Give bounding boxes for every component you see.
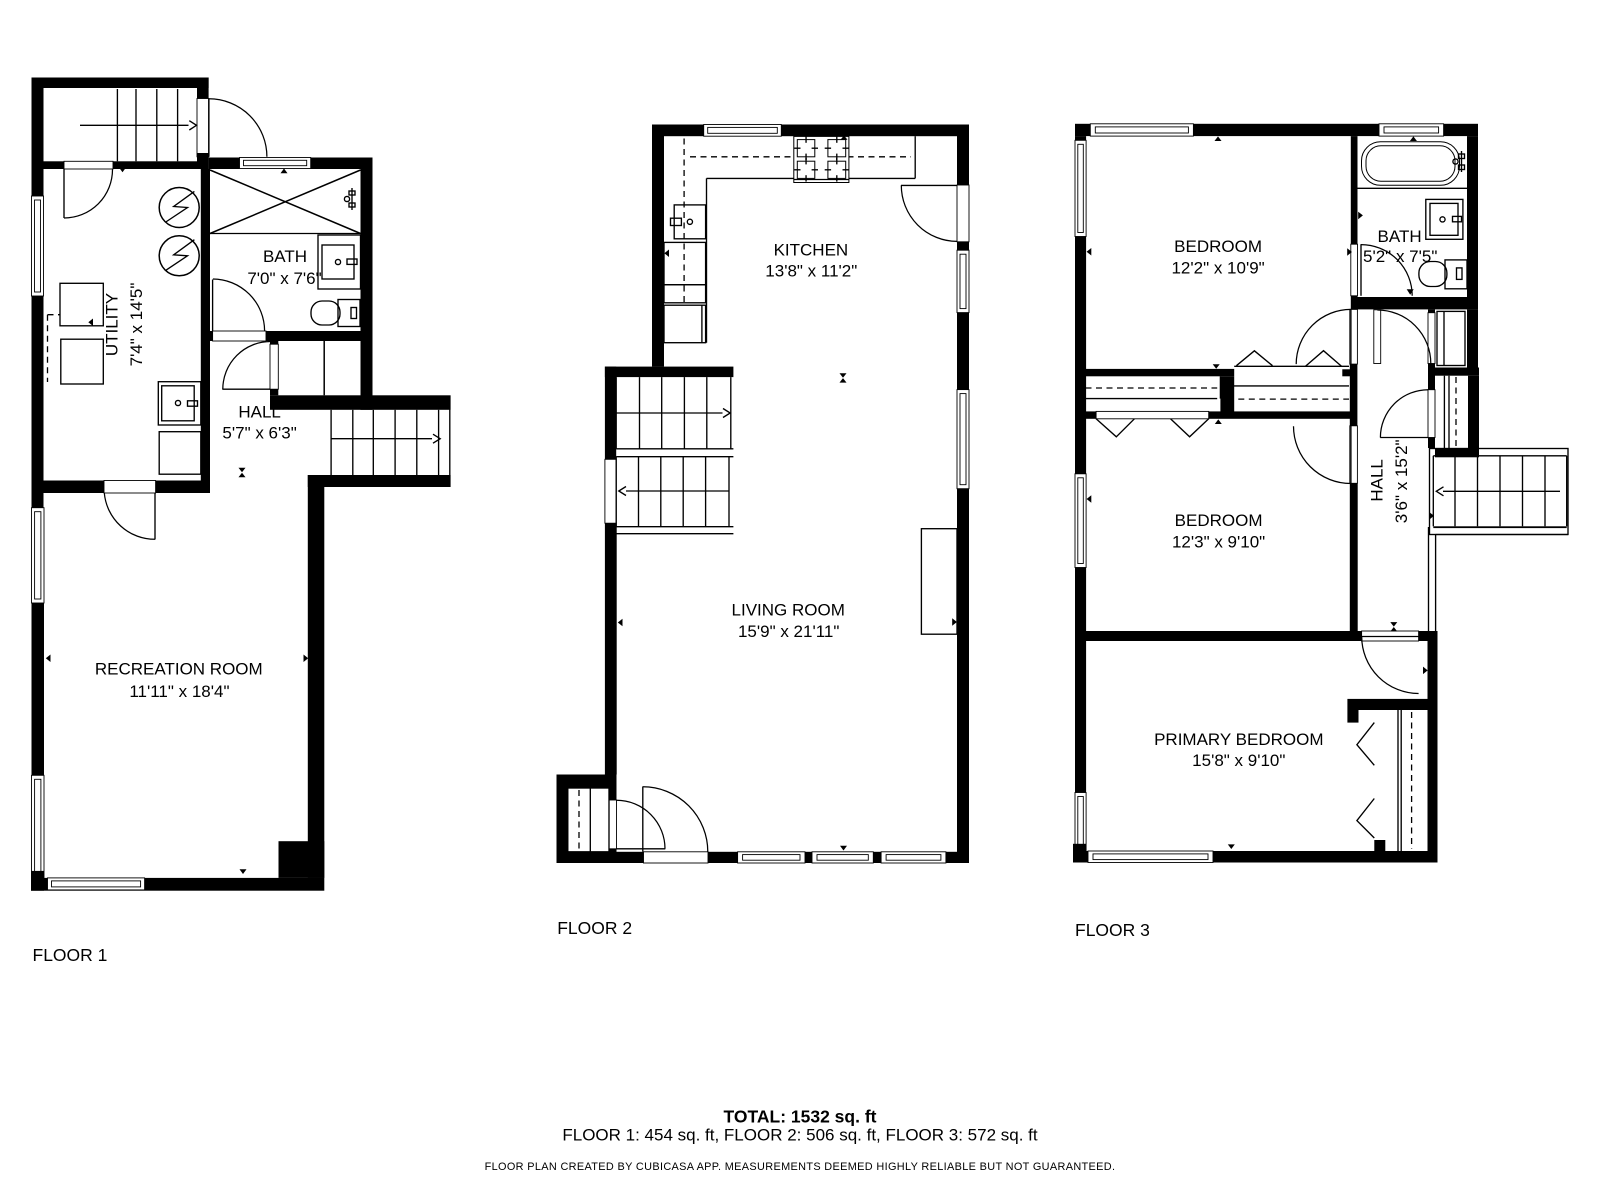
svg-text:BEDROOM: BEDROOM [1174,237,1262,256]
svg-text:11'11" x 18'4": 11'11" x 18'4" [129,682,229,701]
svg-text:5'7" x 6'3": 5'7" x 6'3" [222,423,296,442]
svg-text:TOTAL: 1532 sq. ft: TOTAL: 1532 sq. ft [724,1107,877,1127]
svg-text:FLOOR 3: FLOOR 3 [1075,920,1150,940]
svg-text:FLOOR 1: 454 sq. ft, FLOOR 2:: FLOOR 1: 454 sq. ft, FLOOR 2: 506 sq. ft… [562,1126,1038,1145]
svg-text:KITCHEN: KITCHEN [774,240,849,259]
svg-text:12'3" x 9'10": 12'3" x 9'10" [1172,533,1265,552]
svg-text:UTILITY: UTILITY [103,293,122,356]
svg-text:15'8" x 9'10": 15'8" x 9'10" [1192,751,1285,770]
svg-text:FLOOR 1: FLOOR 1 [33,945,108,965]
svg-text:RECREATION ROOM: RECREATION ROOM [95,659,263,678]
svg-text:PRIMARY BEDROOM: PRIMARY BEDROOM [1154,730,1323,749]
svg-text:FLOOR 2: FLOOR 2 [557,918,632,938]
svg-text:LIVING ROOM: LIVING ROOM [732,601,845,620]
svg-text:HALL: HALL [238,403,281,422]
svg-text:7'0" x 7'6": 7'0" x 7'6" [247,269,321,288]
svg-text:5'2" x 7'5": 5'2" x 7'5" [1363,247,1437,266]
svg-text:FLOOR PLAN CREATED BY CUBICASA: FLOOR PLAN CREATED BY CUBICASA APP. MEAS… [485,1161,1116,1173]
svg-text:13'8" x 11'2": 13'8" x 11'2" [765,261,857,280]
svg-text:7'4" x 14'5": 7'4" x 14'5" [127,283,146,367]
svg-text:HALL: HALL [1367,459,1386,502]
svg-text:BATH: BATH [1378,227,1422,246]
svg-text:3'6" x 15'2": 3'6" x 15'2" [1392,439,1411,523]
svg-text:BATH: BATH [263,247,307,266]
svg-text:BEDROOM: BEDROOM [1175,511,1263,530]
svg-text:12'2" x 10'9": 12'2" x 10'9" [1171,259,1264,278]
svg-text:15'9" x 21'11": 15'9" x 21'11" [738,622,839,641]
